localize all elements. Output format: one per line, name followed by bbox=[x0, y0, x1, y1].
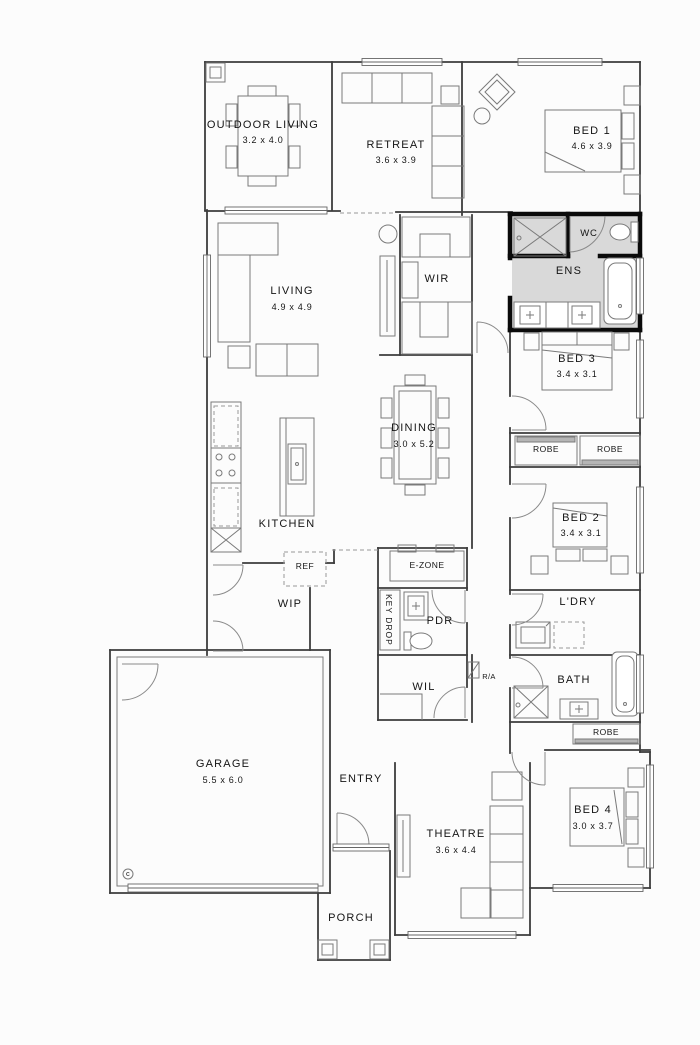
room-dim-bed1: 4.6 x 3.9 bbox=[572, 141, 613, 151]
cooktop bbox=[211, 448, 241, 483]
bed2-door bbox=[512, 484, 546, 518]
window bbox=[647, 765, 654, 868]
room-label-bed1: BED 1 bbox=[573, 125, 611, 137]
key-drop-label: KEY DROP bbox=[384, 594, 394, 646]
room-dim-bed3: 3.4 x 3.1 bbox=[557, 369, 598, 379]
bed4-bed bbox=[570, 768, 644, 867]
garage-marker: c bbox=[126, 869, 130, 878]
return-air-label: R/A bbox=[482, 672, 495, 681]
room-dim-bed2: 3.4 x 3.1 bbox=[561, 528, 602, 538]
window bbox=[637, 340, 644, 418]
ensuite-bathtub bbox=[604, 258, 636, 324]
bath-shower bbox=[514, 686, 548, 718]
bed3-door bbox=[512, 396, 546, 430]
room-label-kitchen: KITCHEN bbox=[259, 518, 316, 530]
room-label-ens: ENS bbox=[556, 265, 582, 277]
ensuite-vanity bbox=[514, 302, 600, 328]
living-sofa bbox=[218, 223, 318, 376]
kitchen-island bbox=[280, 418, 314, 516]
furniture bbox=[117, 63, 644, 959]
laundry-bench bbox=[554, 622, 584, 648]
bed1-bed bbox=[545, 86, 640, 194]
garage-inner-line bbox=[117, 657, 323, 886]
bed1-rug bbox=[474, 74, 515, 124]
bed1-suite-door bbox=[477, 322, 508, 353]
robe-label-bed2: ROBE bbox=[597, 444, 623, 454]
wil-door bbox=[434, 687, 465, 718]
wip-door-bottom bbox=[213, 621, 243, 651]
entry-threshold bbox=[333, 844, 389, 851]
ref-label: REF bbox=[296, 561, 315, 571]
return-air-vent bbox=[468, 662, 479, 678]
room-dim-garage: 5.5 x 6.0 bbox=[203, 775, 244, 785]
room-label-ldry: L'DRY bbox=[559, 596, 596, 608]
room-label-bed4: BED 4 bbox=[574, 804, 612, 816]
room-label-living: LIVING bbox=[270, 285, 313, 297]
window bbox=[408, 932, 516, 939]
bath-tub bbox=[612, 652, 638, 716]
floor-plan: OUTDOOR LIVING 3.2 x 4.0 RETREAT 3.6 x 3… bbox=[0, 0, 700, 1045]
room-label-wc: WC bbox=[580, 228, 597, 239]
room-dim-living: 4.9 x 4.9 bbox=[272, 302, 313, 312]
window bbox=[637, 258, 644, 314]
laundry-sink bbox=[516, 622, 550, 648]
room-dim-retreat: 3.6 x 3.9 bbox=[376, 155, 417, 165]
room-label-pdr: PDR bbox=[427, 615, 454, 627]
outdoor-post bbox=[206, 63, 225, 82]
window bbox=[637, 655, 644, 713]
room-label-wil: WIL bbox=[412, 681, 435, 693]
robe-label-bed4: ROBE bbox=[593, 727, 619, 737]
window bbox=[637, 487, 644, 573]
pdr-basin bbox=[404, 592, 428, 620]
garage-door bbox=[128, 884, 318, 892]
window bbox=[518, 59, 602, 66]
window bbox=[204, 255, 211, 357]
room-label-bed3: BED 3 bbox=[558, 353, 596, 365]
front-door bbox=[337, 813, 369, 845]
room-label-garage: GARAGE bbox=[196, 758, 250, 770]
wir-shelves bbox=[402, 217, 472, 354]
room-label-dining: DINING bbox=[391, 422, 437, 434]
room-label-porch: PORCH bbox=[328, 912, 374, 924]
robe-label-bed3: ROBE bbox=[533, 444, 559, 454]
room-label-bed2: BED 2 bbox=[562, 512, 600, 524]
pdr-toilet bbox=[404, 632, 432, 650]
wil-shelf bbox=[380, 694, 422, 720]
hall-mirror bbox=[379, 225, 397, 336]
wc-toilet bbox=[610, 222, 638, 242]
theatre-tv bbox=[397, 815, 410, 877]
room-label-entry: ENTRY bbox=[339, 773, 382, 785]
laundry-door bbox=[512, 594, 543, 625]
bath-door bbox=[512, 657, 543, 688]
window bbox=[362, 59, 442, 66]
retreat-sofa bbox=[342, 73, 464, 198]
room-label-theatre: THEATRE bbox=[427, 828, 486, 840]
room-label-outdoor-living: OUTDOOR LIVING bbox=[207, 119, 319, 131]
room-dim-theatre: 3.6 x 4.4 bbox=[436, 845, 477, 855]
e-zone-label: E-ZONE bbox=[409, 560, 444, 570]
room-dim-outdoor-living: 3.2 x 4.0 bbox=[243, 135, 284, 145]
bath-vanity bbox=[560, 699, 598, 719]
wip-door-top bbox=[213, 565, 243, 595]
window bbox=[553, 885, 643, 892]
room-label-bath: BATH bbox=[557, 674, 590, 686]
garage-internal-door bbox=[122, 664, 158, 700]
room-label-wip: WIP bbox=[278, 598, 302, 610]
room-label-wir: WIR bbox=[425, 273, 450, 285]
room-dim-bed4: 3.0 x 3.7 bbox=[573, 821, 614, 831]
room-dim-dining: 3.0 x 5.2 bbox=[394, 439, 435, 449]
sliding-door bbox=[225, 207, 327, 214]
bed4-door bbox=[512, 752, 545, 785]
porch-pillars bbox=[318, 940, 389, 959]
walls bbox=[110, 62, 650, 960]
kitchen-bench bbox=[211, 402, 241, 552]
dining-table bbox=[381, 375, 449, 495]
room-label-retreat: RETREAT bbox=[367, 139, 426, 151]
